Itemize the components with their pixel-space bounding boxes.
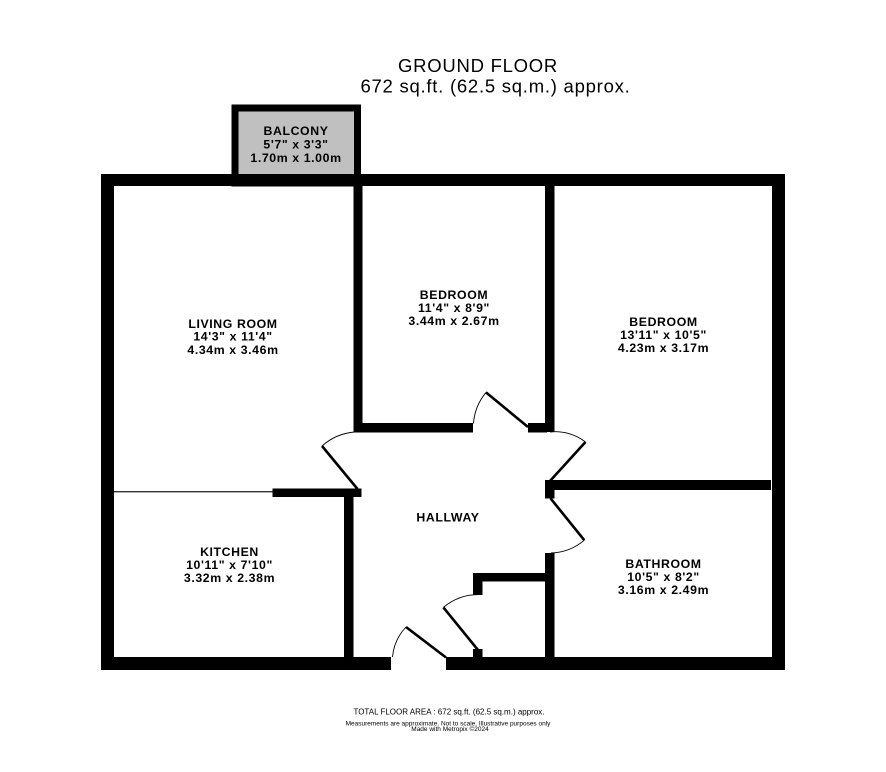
svg-text:10'11" x 7'10": 10'11" x 7'10" [186, 558, 273, 572]
svg-text:4.23m x 3.17m: 4.23m x 3.17m [618, 341, 709, 355]
svg-text:4.34m x 3.46m: 4.34m x 3.46m [187, 343, 278, 357]
svg-text:BEDROOM: BEDROOM [629, 315, 697, 329]
svg-text:3.16m x 2.49m: 3.16m x 2.49m [618, 583, 709, 597]
svg-text:1.70m x 1.00m: 1.70m x 1.00m [250, 151, 341, 165]
svg-text:11'4" x 8'9": 11'4" x 8'9" [418, 301, 490, 315]
svg-text:GROUND FLOOR: GROUND FLOOR [398, 55, 558, 76]
svg-text:TOTAL FLOOR AREA : 672 sq.ft.: TOTAL FLOOR AREA : 672 sq.ft. (62.5 sq.m… [353, 707, 544, 716]
svg-text:13'11" x 10'5": 13'11" x 10'5" [620, 328, 707, 342]
svg-text:3.44m x 2.67m: 3.44m x 2.67m [408, 314, 499, 328]
svg-text:3.32m x 2.38m: 3.32m x 2.38m [184, 571, 275, 585]
svg-text:10'5" x 8'2": 10'5" x 8'2" [627, 570, 700, 584]
svg-text:BATHROOM: BATHROOM [625, 557, 701, 571]
svg-text:KITCHEN: KITCHEN [200, 545, 259, 559]
svg-text:BALCONY: BALCONY [264, 124, 329, 138]
svg-text:BEDROOM: BEDROOM [420, 288, 488, 302]
svg-text:5'7" x 3'3": 5'7" x 3'3" [263, 138, 328, 152]
svg-text:672 sq.ft. (62.5 sq.m.) approx: 672 sq.ft. (62.5 sq.m.) approx. [360, 76, 630, 97]
svg-text:HALLWAY: HALLWAY [416, 511, 479, 525]
svg-text:14'3" x 11'4": 14'3" x 11'4" [193, 330, 272, 344]
svg-text:Made with Metropix ©2024: Made with Metropix ©2024 [411, 725, 489, 733]
